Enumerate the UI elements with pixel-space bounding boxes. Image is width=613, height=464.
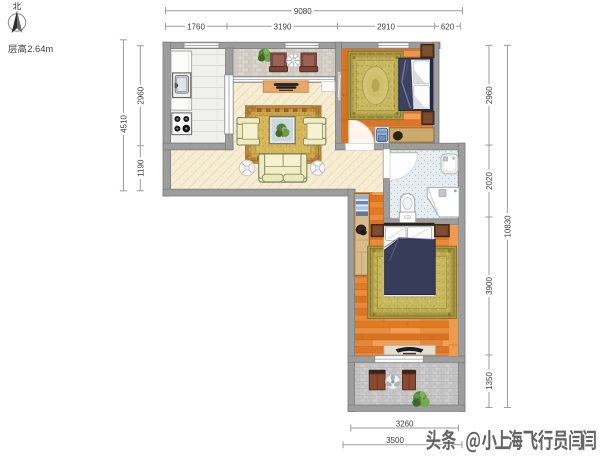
svg-text:3900: 3900: [485, 277, 494, 295]
svg-text:1760: 1760: [187, 22, 205, 31]
svg-text:2.64m: 2.64m: [27, 43, 53, 54]
svg-text:2020: 2020: [485, 172, 494, 190]
svg-text:10830: 10830: [503, 215, 512, 238]
svg-text:3190: 3190: [274, 22, 292, 31]
svg-text:1190: 1190: [136, 159, 145, 177]
svg-text:3500: 3500: [386, 436, 404, 445]
svg-text:3260: 3260: [396, 419, 414, 428]
svg-text:620: 620: [441, 22, 455, 31]
svg-text:4510: 4510: [119, 115, 128, 133]
svg-text:1350: 1350: [485, 372, 494, 390]
svg-text:2960: 2960: [136, 86, 145, 104]
svg-text:9080: 9080: [294, 7, 312, 16]
svg-text:2910: 2910: [377, 22, 395, 31]
svg-text:2960: 2960: [485, 86, 494, 104]
